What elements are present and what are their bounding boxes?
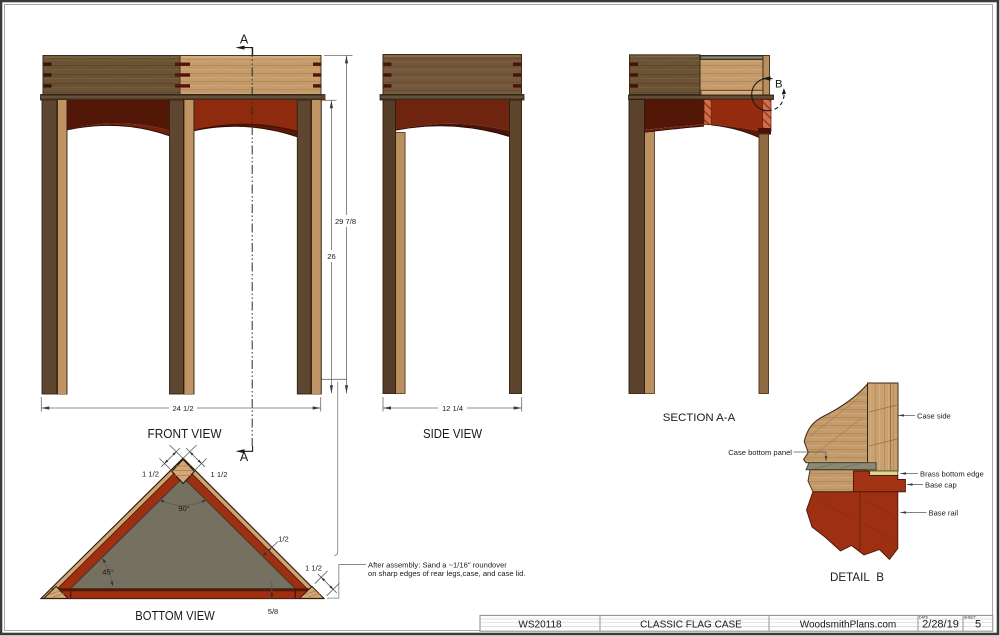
svg-text:45°: 45° (102, 568, 113, 577)
svg-text:Base cap: Base cap (925, 480, 957, 489)
svg-text:Case bottom panel: Case bottom panel (728, 448, 792, 457)
svg-text:2/28/19: 2/28/19 (922, 619, 959, 631)
svg-text:29 7/8: 29 7/8 (335, 217, 356, 226)
svg-text:90°: 90° (178, 504, 189, 513)
svg-text:5/8: 5/8 (268, 607, 279, 616)
svg-text:Base rail: Base rail (929, 508, 959, 517)
svg-text:BOTTOM VIEW: BOTTOM VIEW (135, 608, 215, 623)
svg-text:on sharp edges of rear legs,ca: on sharp edges of rear legs,case, and ca… (368, 569, 525, 578)
svg-text:A: A (240, 33, 249, 47)
svg-text:1 1/2: 1 1/2 (211, 470, 228, 479)
svg-text:FRONT VIEW: FRONT VIEW (148, 426, 223, 441)
svg-text:WS20118: WS20118 (518, 619, 562, 630)
svg-text:1/2: 1/2 (278, 535, 289, 544)
svg-text:WoodsmithPlans.com: WoodsmithPlans.com (800, 619, 897, 630)
svg-text:SECTION A-A: SECTION A-A (663, 412, 736, 424)
svg-text:DETAIL B: DETAIL B (830, 571, 884, 584)
svg-text:Brass bottom edge: Brass bottom edge (920, 469, 984, 478)
svg-text:26: 26 (327, 252, 335, 261)
svg-text:Case side: Case side (917, 411, 951, 420)
svg-text:24 1/2: 24 1/2 (172, 404, 193, 413)
svg-text:12 1/4: 12 1/4 (442, 404, 463, 413)
svg-text:1 1/2: 1 1/2 (142, 470, 159, 479)
svg-text:A: A (240, 450, 249, 464)
svg-text:1 1/2: 1 1/2 (305, 564, 322, 573)
svg-text:B: B (775, 79, 783, 91)
svg-text:SIDE VIEW: SIDE VIEW (423, 426, 483, 441)
svg-text:5: 5 (975, 619, 981, 631)
svg-text:CLASSIC FLAG CASE: CLASSIC FLAG CASE (640, 619, 742, 630)
